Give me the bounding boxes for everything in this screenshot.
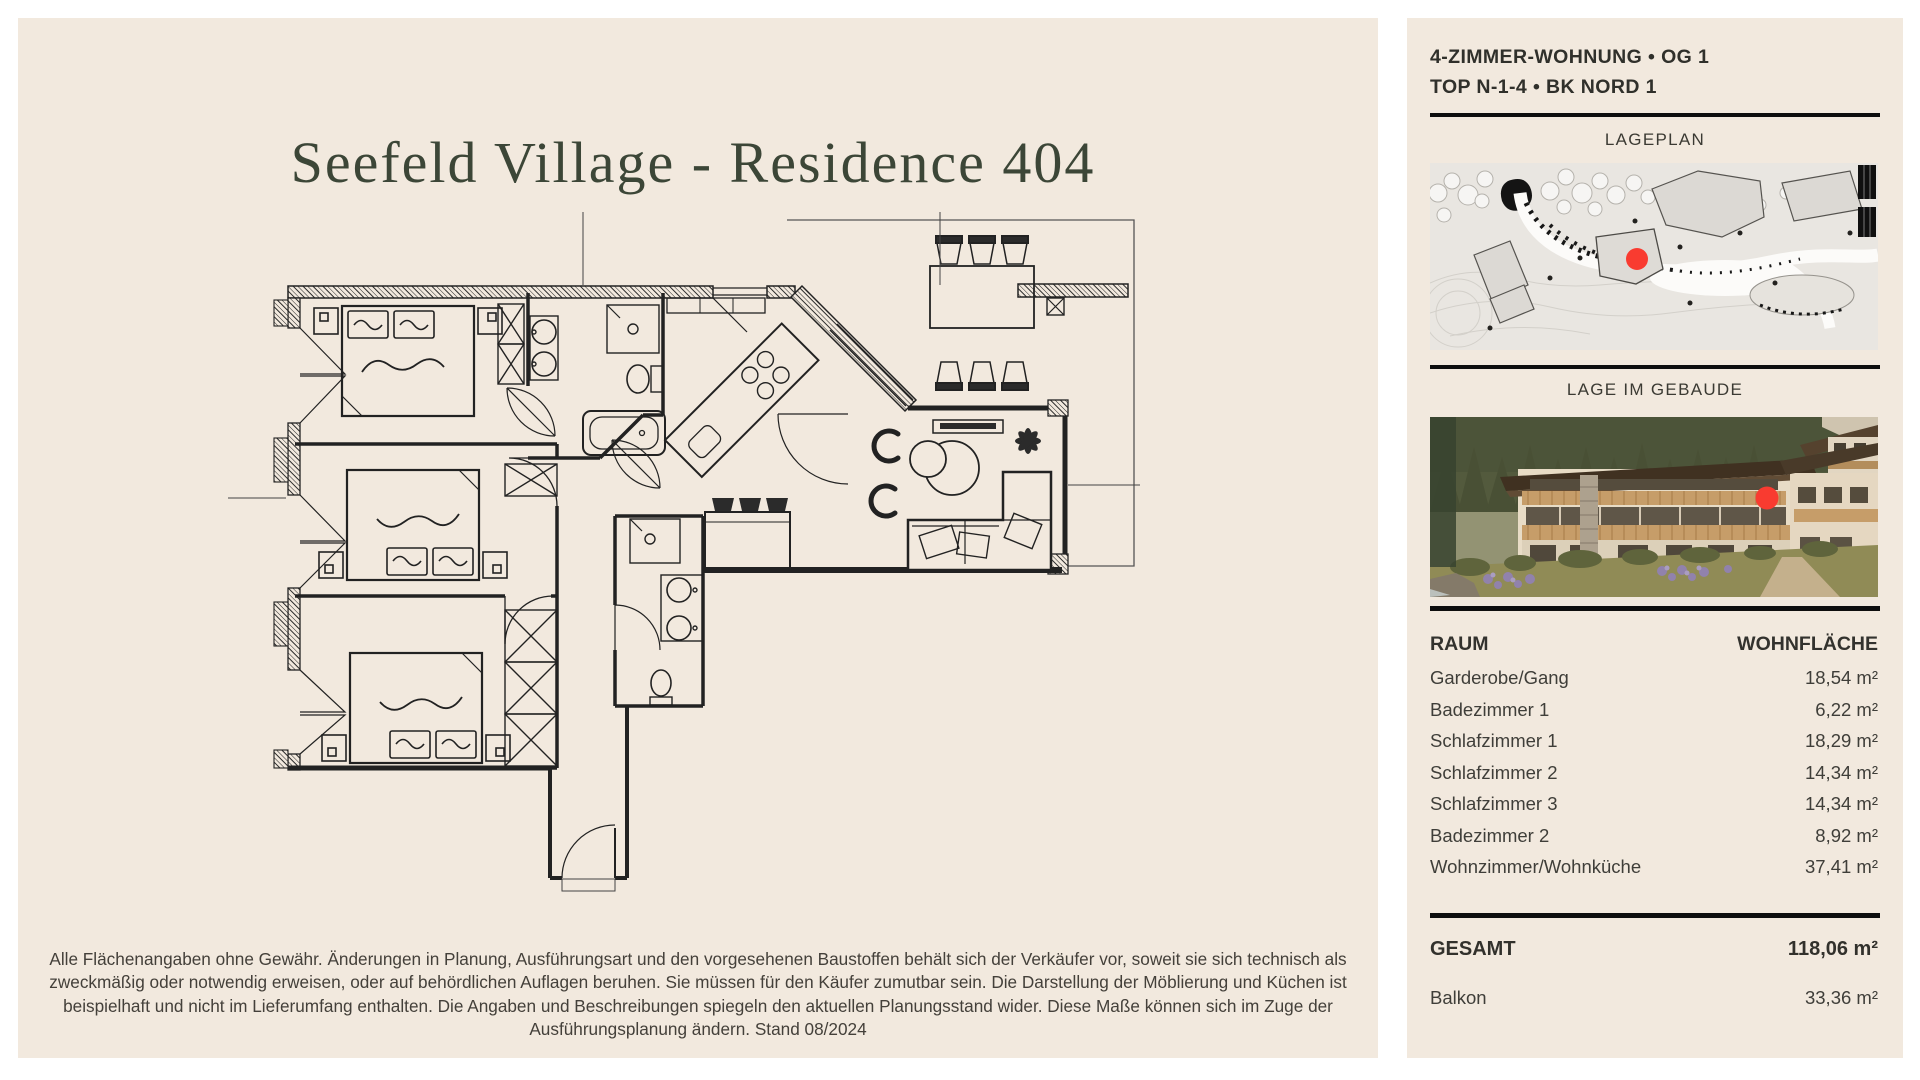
divider [1430,365,1880,369]
location-marker [1756,487,1779,510]
floorplan-panel: Seefeld Village - Residence 404 [18,18,1378,1058]
living-room [871,420,1051,570]
room-name: Garderobe/Gang [1430,667,1569,689]
siteplan-image [1430,163,1878,350]
divider [1430,113,1880,117]
building-photo [1430,417,1878,597]
room-name: Wohnzimmer/Wohnküche [1430,856,1641,878]
gebaeude-title: LAGE IM GEBAUDE [1407,380,1903,400]
room-area: 37,41 m² [1805,856,1878,878]
terrace-outline [787,220,1134,566]
total-value: 118,06 m² [1788,938,1878,961]
dining-table-icon [930,236,1064,390]
disclaimer-text: Alle Flächenangaben ohne Gewähr. Änderun… [48,948,1348,1042]
floorplan-svg [225,211,1150,911]
table-row: Schlafzimmer 2 14,34 m² [1430,762,1878,794]
table-row: Wohnzimmer/Wohnküche 37,41 m² [1430,856,1878,888]
balcony-row: Balkon 33,36 m² [1430,987,1878,1009]
bed-icon [314,306,502,416]
sofa-icon [908,472,1051,570]
total-label: GESAMT [1430,938,1516,961]
bathroom2 [615,516,703,706]
room-name: Badezimmer 1 [1430,699,1549,721]
toilet-icon [627,365,649,393]
disclaimer-line: Alle Flächenangaben ohne Gewähr. Änderun… [48,948,1348,971]
column-area: WOHNFLÄCHE [1737,633,1878,656]
page-title: Seefeld Village - Residence 404 [18,129,1368,196]
floorplan-drawing [225,211,1150,911]
room-area: 18,29 m² [1805,730,1878,752]
lageplan-title: LAGEPLAN [1407,130,1903,150]
divider [1430,606,1880,611]
balcony-value: 33,36 m² [1805,987,1878,1009]
room-name: Schlafzimmer 2 [1430,762,1557,784]
room-area: 6,22 m² [1815,699,1878,721]
disclaimer-line: zweckmäßig oder notwendig erweisen, oder… [48,971,1348,994]
table-row: Badezimmer 1 6,22 m² [1430,699,1878,731]
armchair-icon [871,486,895,516]
disclaimer-line: beispielhaft und nicht im Lieferumfang e… [48,995,1348,1018]
apartment-id-label: TOP N-1-4 • BK NORD 1 [1430,76,1657,99]
table-row: Garderobe/Gang 18,54 m² [1430,667,1878,699]
room-area: 14,34 m² [1805,793,1878,815]
column-room: RAUM [1430,633,1489,656]
room-area: 8,92 m² [1815,825,1878,847]
room-name: Badezimmer 2 [1430,825,1549,847]
plant-icon [1015,428,1041,454]
location-marker [1626,248,1648,270]
disclaimer-line: Ausführungsplanung ändern. Stand 08/2024 [48,1018,1348,1041]
room-table-body: Garderobe/Gang 18,54 m² Badezimmer 1 6,2… [1430,667,1878,888]
armchair-icon [874,431,898,461]
room-name: Schlafzimmer 1 [1430,730,1557,752]
table-row: Badezimmer 2 8,92 m² [1430,825,1878,857]
total-row: GESAMT 118,06 m² [1430,938,1878,961]
table-row: Schlafzimmer 1 18,29 m² [1430,730,1878,762]
room-area: 14,34 m² [1805,762,1878,784]
room-table-header: RAUM WOHNFLÄCHE [1430,633,1878,656]
balcony-label: Balkon [1430,987,1487,1009]
room-name: Schlafzimmer 3 [1430,793,1557,815]
info-sidebar: 4-ZIMMER-WOHNUNG • OG 1 TOP N-1-4 • BK N… [1407,18,1903,1058]
page: Seefeld Village - Residence 404 [0,0,1920,1080]
apartment-type-label: 4-ZIMMER-WOHNUNG • OG 1 [1430,46,1709,69]
kitchen [665,298,818,568]
bed-icon [322,653,510,763]
table-row: Schlafzimmer 3 14,34 m² [1430,793,1878,825]
room-area: 18,54 m² [1805,667,1878,689]
bathroom1 [528,293,665,458]
bed-icon [319,470,507,580]
divider [1430,913,1880,918]
